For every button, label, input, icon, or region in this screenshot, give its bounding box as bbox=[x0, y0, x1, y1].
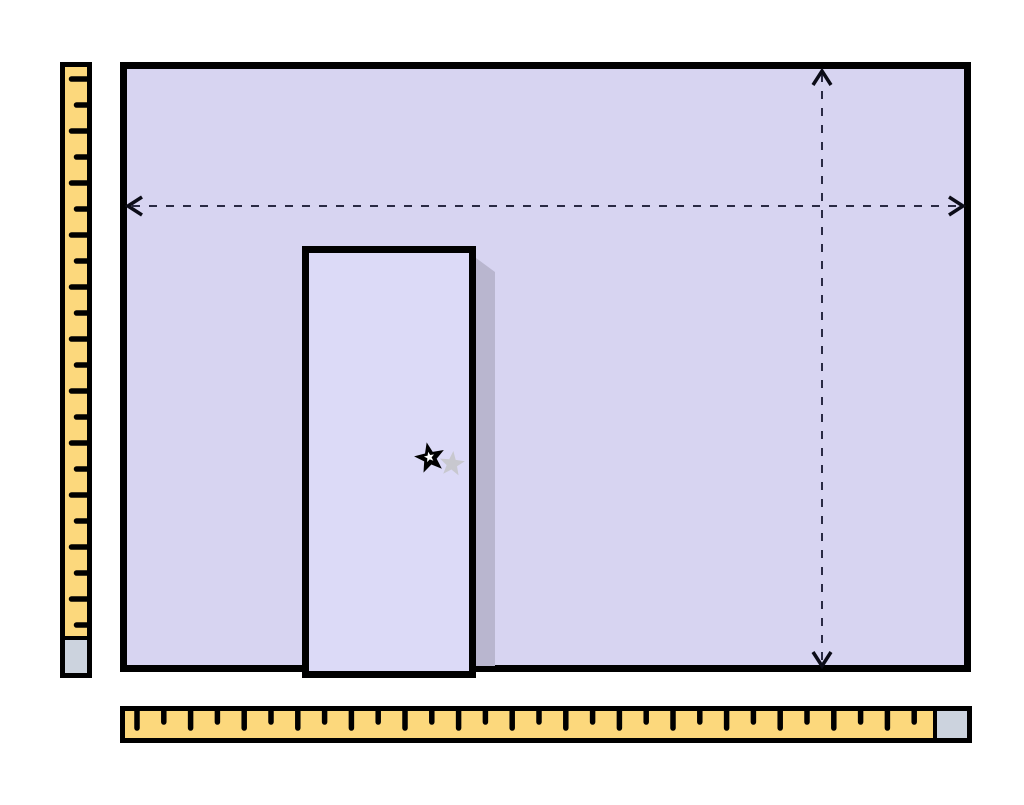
left-ruler[interactable] bbox=[60, 62, 92, 678]
bottom-ruler-end-cap bbox=[933, 711, 967, 738]
diagram-canvas bbox=[0, 0, 1024, 805]
bottom-ruler[interactable] bbox=[120, 706, 972, 743]
bottom-ruler-ticks bbox=[125, 711, 967, 738]
left-ruler-ticks bbox=[65, 67, 87, 673]
door-rect[interactable] bbox=[302, 246, 476, 678]
door-shadow bbox=[476, 258, 495, 666]
left-ruler-end-cap bbox=[65, 636, 87, 673]
wall-rect bbox=[120, 62, 971, 672]
